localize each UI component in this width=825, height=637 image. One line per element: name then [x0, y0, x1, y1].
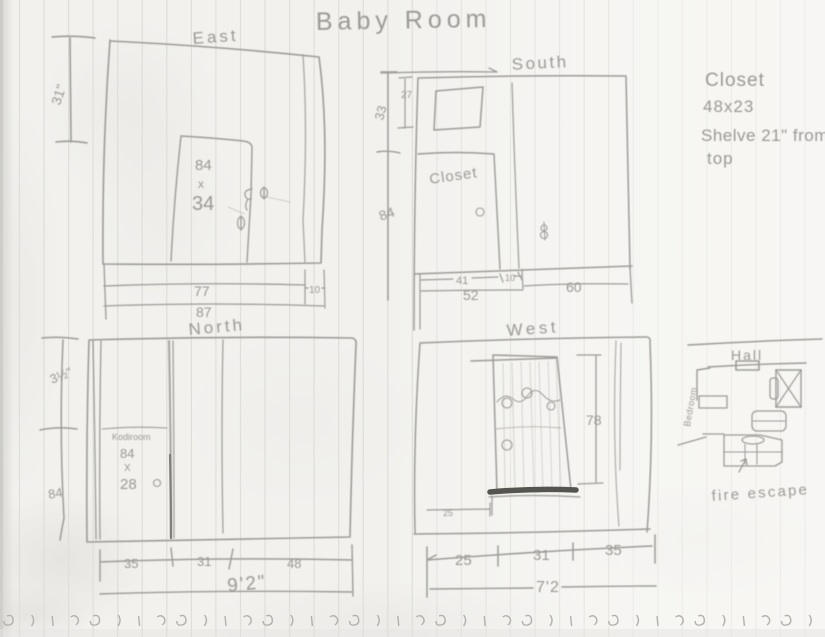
svg-text:9'2": 9'2" — [226, 572, 267, 597]
svg-text:31: 31 — [533, 547, 550, 564]
svg-text:48x23: 48x23 — [703, 97, 754, 116]
svg-text:48: 48 — [287, 556, 301, 571]
svg-text:84: 84 — [120, 446, 134, 461]
svg-text:10: 10 — [505, 273, 515, 283]
svg-text:84: 84 — [195, 157, 212, 174]
svg-text:West: West — [506, 317, 560, 340]
svg-text:South: South — [511, 52, 569, 74]
svg-text:77: 77 — [194, 283, 210, 299]
svg-text:Closet: Closet — [705, 70, 765, 91]
svg-text:84: 84 — [47, 485, 64, 502]
svg-text:60: 60 — [566, 279, 582, 295]
svg-text:52: 52 — [463, 287, 479, 303]
svg-text:10: 10 — [309, 285, 321, 296]
svg-text:25: 25 — [443, 508, 453, 518]
svg-text:top: top — [707, 149, 734, 168]
svg-text:31: 31 — [197, 554, 211, 569]
svg-text:35: 35 — [605, 542, 622, 559]
svg-text:X: X — [124, 463, 131, 474]
svg-text:East: East — [192, 26, 239, 48]
svg-text:78: 78 — [586, 412, 602, 428]
svg-text:28: 28 — [120, 476, 137, 493]
svg-text:25: 25 — [455, 552, 472, 569]
svg-text:27: 27 — [401, 90, 413, 101]
svg-text:35: 35 — [124, 556, 138, 571]
svg-text:Kodiroom: Kodiroom — [112, 432, 151, 442]
svg-text:Shelve 21" from: Shelve 21" from — [701, 126, 825, 145]
svg-text:41: 41 — [456, 275, 468, 287]
svg-text:Baby Room: Baby Room — [316, 5, 492, 36]
svg-text:x: x — [198, 177, 204, 191]
svg-text:34: 34 — [192, 193, 214, 215]
svg-text:7'2: 7'2 — [536, 579, 560, 596]
